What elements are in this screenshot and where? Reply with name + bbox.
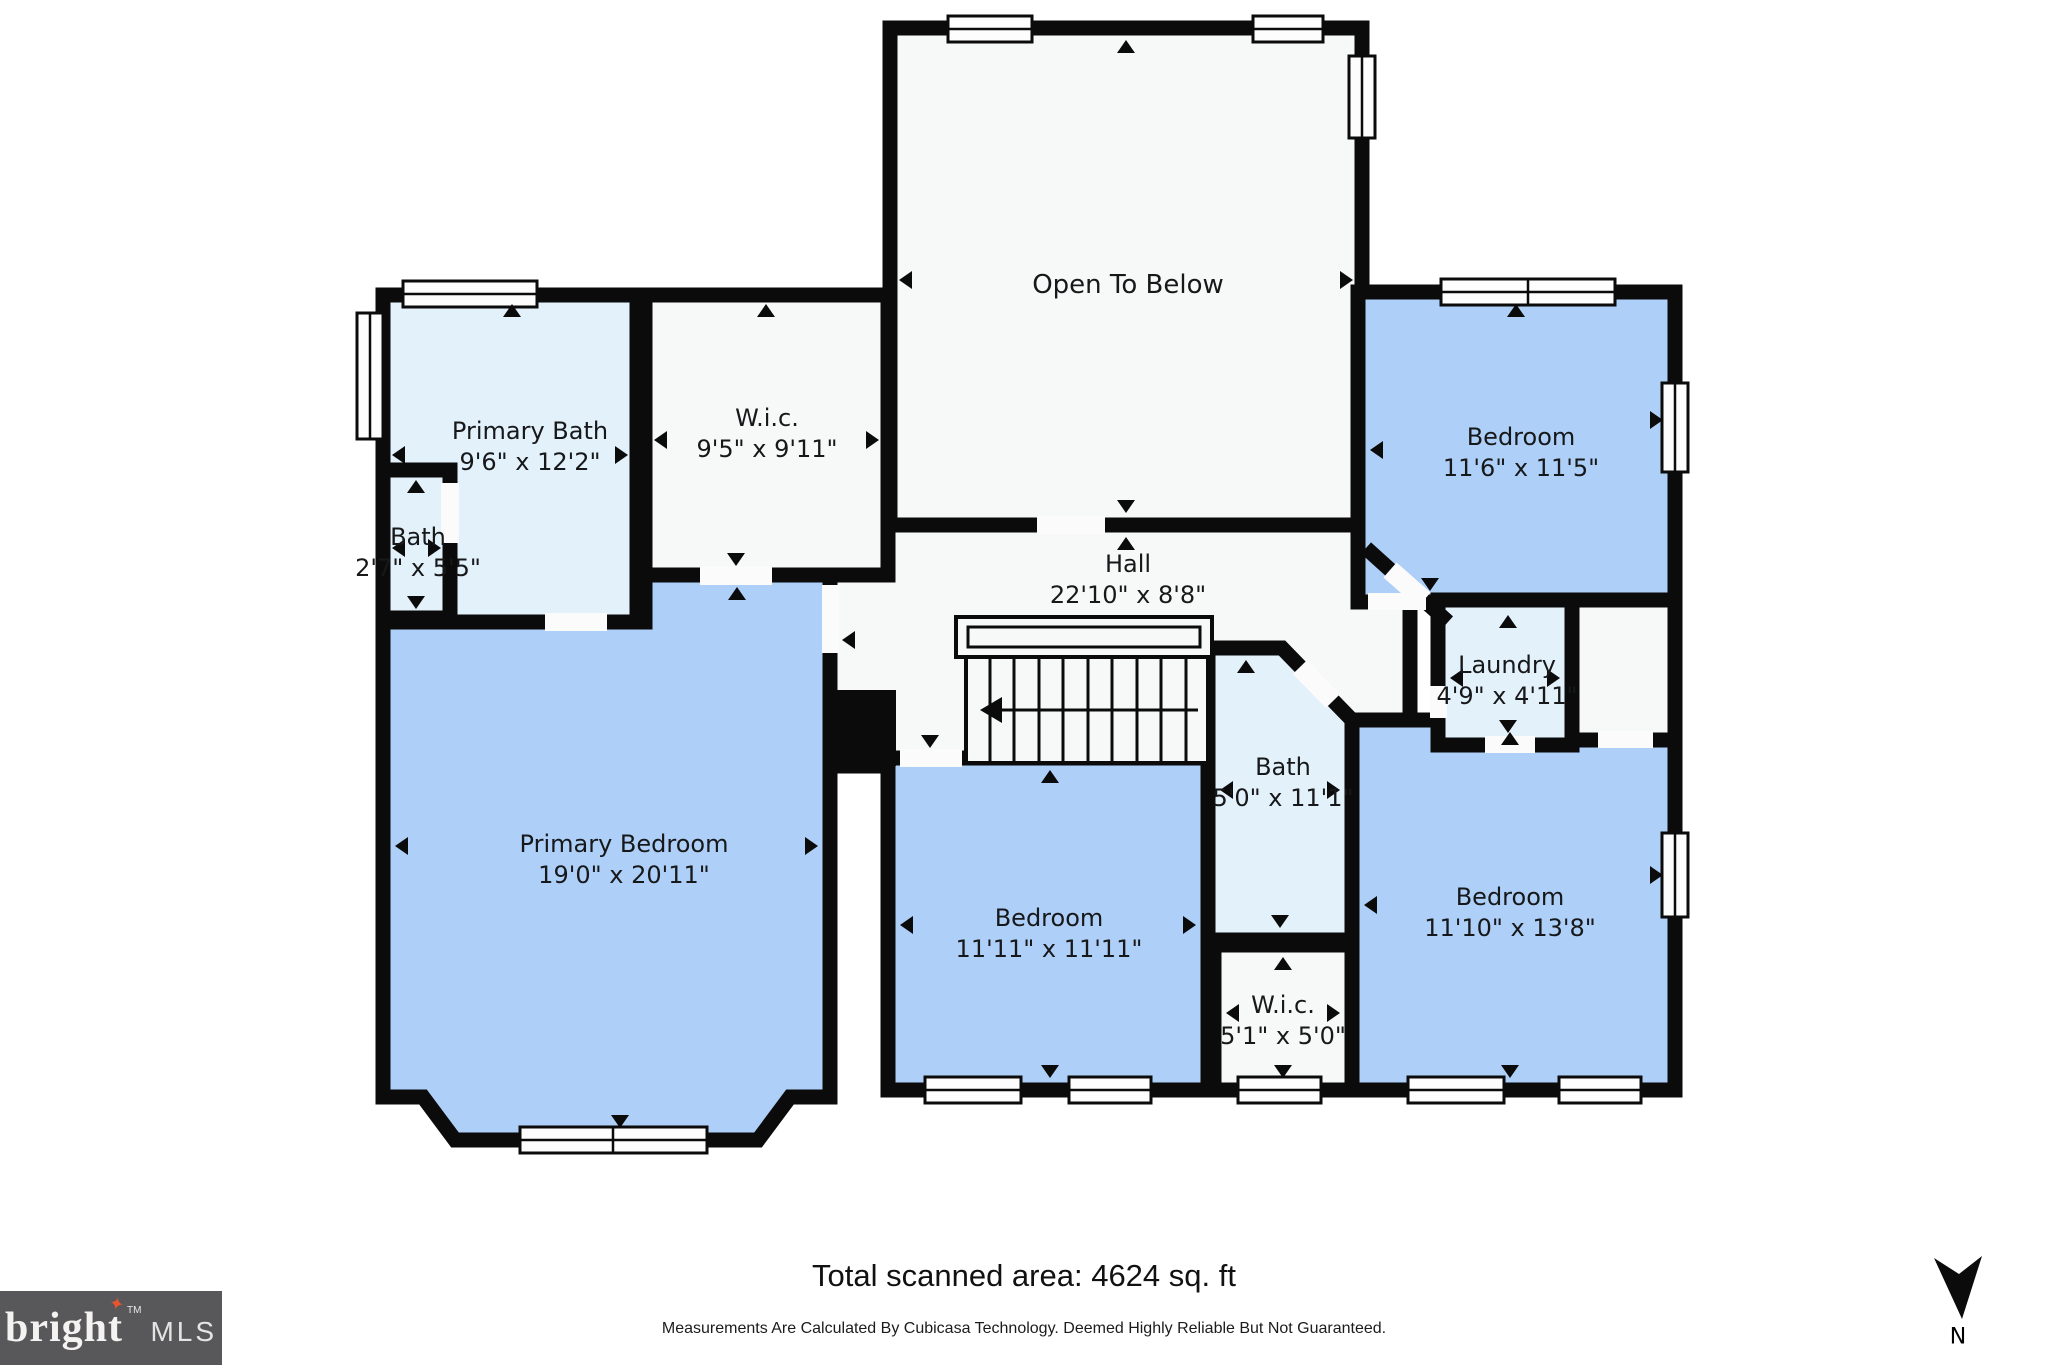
room-dims: 22'10" x 8'8" [1050,580,1206,611]
floorplan-canvas [0,0,2048,1365]
room-name: Hall [1050,549,1206,580]
brightmls-logo: bright✦ TM MLS [0,1291,222,1365]
room-label-wic-top: W.i.c. 9'5" x 9'11" [696,403,837,465]
logo-trademark: TM [127,1305,141,1316]
room-name: W.i.c. [696,403,837,434]
door-opening [1598,731,1653,748]
room-label-primary-bath: Primary Bath 9'6" x 12'2" [452,416,608,478]
door-opening [700,566,772,585]
door-opening [900,749,962,767]
room-label-bedroom-bottom-center: Bedroom 11'11" x 11'11" [956,903,1143,965]
door-opening [1037,516,1105,534]
room-dims: 9'6" x 12'2" [452,447,608,478]
logo-wordmark: bright✦ [5,1304,123,1352]
room-label-open-to-below: Open To Below [1032,269,1224,303]
room-name: Bedroom [1443,422,1599,453]
room-dims: 11'6" x 11'5" [1443,453,1599,484]
room-name: Laundry [1436,650,1577,681]
logo-star-icon: ✦ [107,1293,127,1317]
wall-column [828,690,896,766]
room-label-wic-bottom: W.i.c. 5'1" x 5'0" [1220,990,1346,1052]
room-dims: 19'0" x 20'11" [520,860,729,891]
room-label-bedroom-top-right: Bedroom 11'6" x 11'5" [1443,422,1599,484]
room-dims: 4'9" x 4'11" [1436,681,1577,712]
total-area-text: Total scanned area: 4624 sq. ft [812,1258,1236,1294]
logo-primary-text: bright [5,1305,123,1351]
room-name: Open To Below [1032,269,1224,303]
door-opening [822,585,839,653]
room-label-primary-bedroom: Primary Bedroom 19'0" x 20'11" [520,829,729,891]
floorplan-page: Open To Below Primary Bath 9'6" x 12'2" … [0,0,2048,1365]
compass-north-label: N [1950,1325,1966,1350]
stair-railing [956,617,1212,657]
room-name: Primary Bath [452,416,608,447]
room-dims: 11'10" x 13'8" [1424,913,1596,944]
room-name: Bath [1212,752,1353,783]
room-closet [1572,600,1675,740]
room-dims: 9'5" x 9'11" [696,434,837,465]
staircase [956,617,1212,763]
room-dims: 2'7" x 5'5" [355,553,481,584]
room-name: Bath [355,522,481,553]
room-label-bedroom-bottom-right: Bedroom 11'10" x 13'8" [1424,882,1596,944]
room-label-bath-small: Bath 2'7" x 5'5" [355,522,481,584]
room-label-bath-center: Bath 5'0" x 11'1" [1212,752,1353,814]
room-name: Primary Bedroom [520,829,729,860]
room-name: Bedroom [956,903,1143,934]
room-dims: 11'11" x 11'11" [956,934,1143,965]
disclaimer-text: Measurements Are Calculated By Cubicasa … [662,1320,1386,1338]
room-dims: 5'0" x 11'1" [1212,783,1353,814]
room-dims: 5'1" x 5'0" [1220,1021,1346,1052]
door-opening [545,613,607,631]
room-name: Bedroom [1424,882,1596,913]
room-name: W.i.c. [1220,990,1346,1021]
room-label-laundry: Laundry 4'9" x 4'11" [1436,650,1577,712]
logo-secondary-text: MLS [150,1316,217,1348]
room-label-hall: Hall 22'10" x 8'8" [1050,549,1206,611]
north-compass-icon [1934,1256,1982,1319]
